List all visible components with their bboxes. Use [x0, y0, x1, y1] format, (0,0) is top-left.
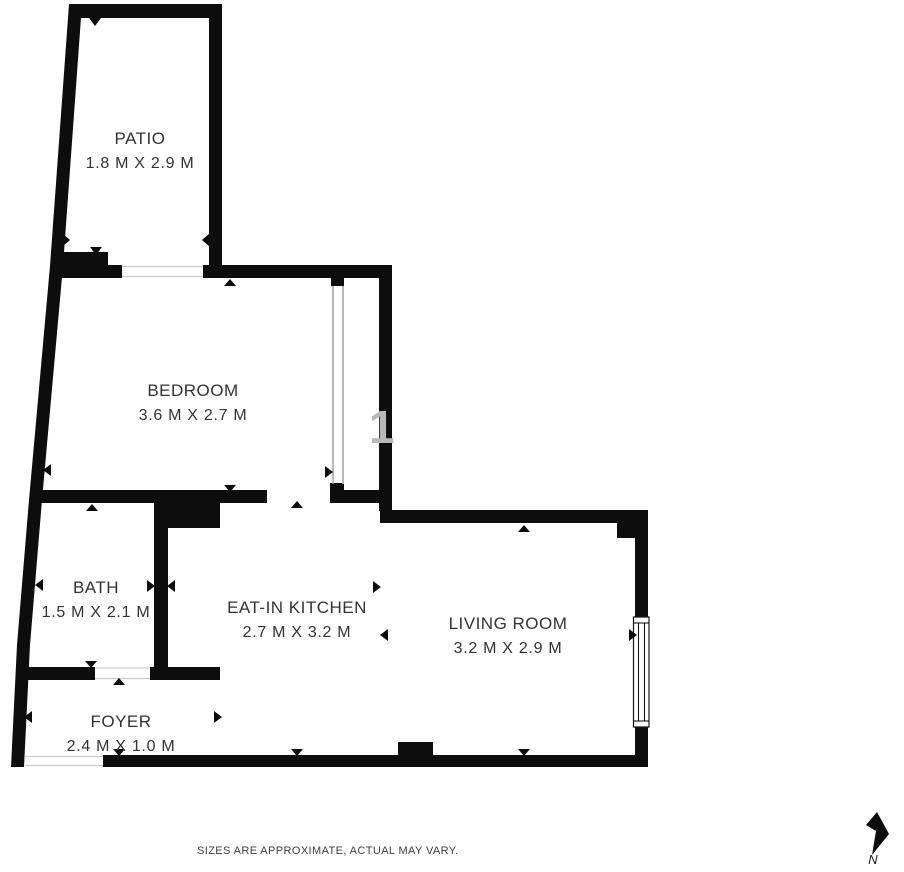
wall-living-top [380, 510, 648, 523]
marker-foyer-passage [214, 711, 222, 723]
wall-bath-right [154, 500, 168, 680]
disclaimer-text: SIZES ARE APPROXIMATE, ACTUAL MAY VARY. [197, 845, 459, 857]
marker-bottom-wall-2 [518, 749, 530, 756]
wall-patio-right [209, 4, 222, 278]
room-label-bedroom: BEDROOM 3.6 M X 2.7 M [139, 378, 248, 428]
room-dimensions: 2.4 M X 1.0 M [67, 734, 176, 759]
room-name: PATIO [86, 126, 195, 151]
room-label-bath: BATH 1.5 M X 2.1 M [42, 575, 151, 625]
wall-patio-top [69, 4, 222, 18]
room-label-eat-in-kitchen: EAT-IN KITCHEN 2.7 M X 3.2 M [227, 595, 367, 645]
room-dimensions: 3.2 M X 2.9 M [449, 636, 568, 661]
room-dimensions: 2.7 M X 3.2 M [227, 620, 367, 645]
marker-bedroom-closet [325, 466, 333, 478]
wall-bedroom-bottom-left [34, 490, 267, 503]
wall-living-right-upper [635, 523, 648, 619]
wall-bath-bottom-right [150, 667, 220, 680]
marker-patio-bottom-left [62, 233, 70, 247]
patio-door-opening [122, 267, 203, 277]
living-room-window [634, 617, 650, 727]
wall-bath-bottom-left [24, 667, 95, 680]
marker-kitchen-door [291, 501, 303, 508]
marker-kitchen-right-upper [373, 581, 381, 593]
room-label-foyer: FOYER 2.4 M X 1.0 M [67, 709, 176, 759]
marker-kitchen-right-lower [380, 629, 388, 641]
bath-door-opening [95, 668, 150, 679]
marker-bath-top [86, 504, 98, 511]
room-label-patio: PATIO 1.8 M X 2.9 M [86, 126, 195, 176]
room-name: LIVING ROOM [449, 611, 568, 636]
marker-bedroom-door-top [224, 279, 236, 286]
marker-bottom-wall-1 [291, 749, 303, 756]
north-arrow-icon [866, 812, 889, 855]
wall-patio-bedroom-left [54, 265, 122, 278]
room-name: BEDROOM [139, 378, 248, 403]
floor-plan-page: PATIO 1.8 M X 2.9 M BEDROOM 3.6 M X 2.7 … [0, 0, 904, 872]
marker-patio-top [89, 18, 101, 26]
marker-living-top [518, 525, 530, 532]
room-dimensions: 1.5 M X 2.1 M [42, 600, 151, 625]
north-label: N [862, 852, 884, 867]
wall-bottom [103, 755, 648, 767]
wall-bottom-pillar [398, 742, 433, 756]
watermark: 1 [369, 404, 395, 450]
wall-bedroom-right [379, 265, 392, 511]
room-name: BATH [42, 575, 151, 600]
marker-patio-bottom-right [202, 233, 210, 247]
room-name: EAT-IN KITCHEN [227, 595, 367, 620]
room-dimensions: 1.8 M X 2.9 M [86, 151, 195, 176]
room-label-living-room: LIVING ROOM 3.2 M X 2.9 M [449, 611, 568, 661]
wall-bedroom-top [203, 265, 392, 278]
marker-bath-wall-right [167, 580, 175, 592]
wall-left-slanted [11, 4, 82, 767]
room-name: FOYER [67, 709, 176, 734]
room-dimensions: 3.6 M X 2.7 M [139, 403, 248, 428]
interior-walls [24, 252, 648, 767]
bedroom-closet-sliding-door [331, 277, 344, 493]
wall-patio-bedroom-step [56, 252, 108, 266]
marker-bath-door-top [85, 661, 97, 668]
